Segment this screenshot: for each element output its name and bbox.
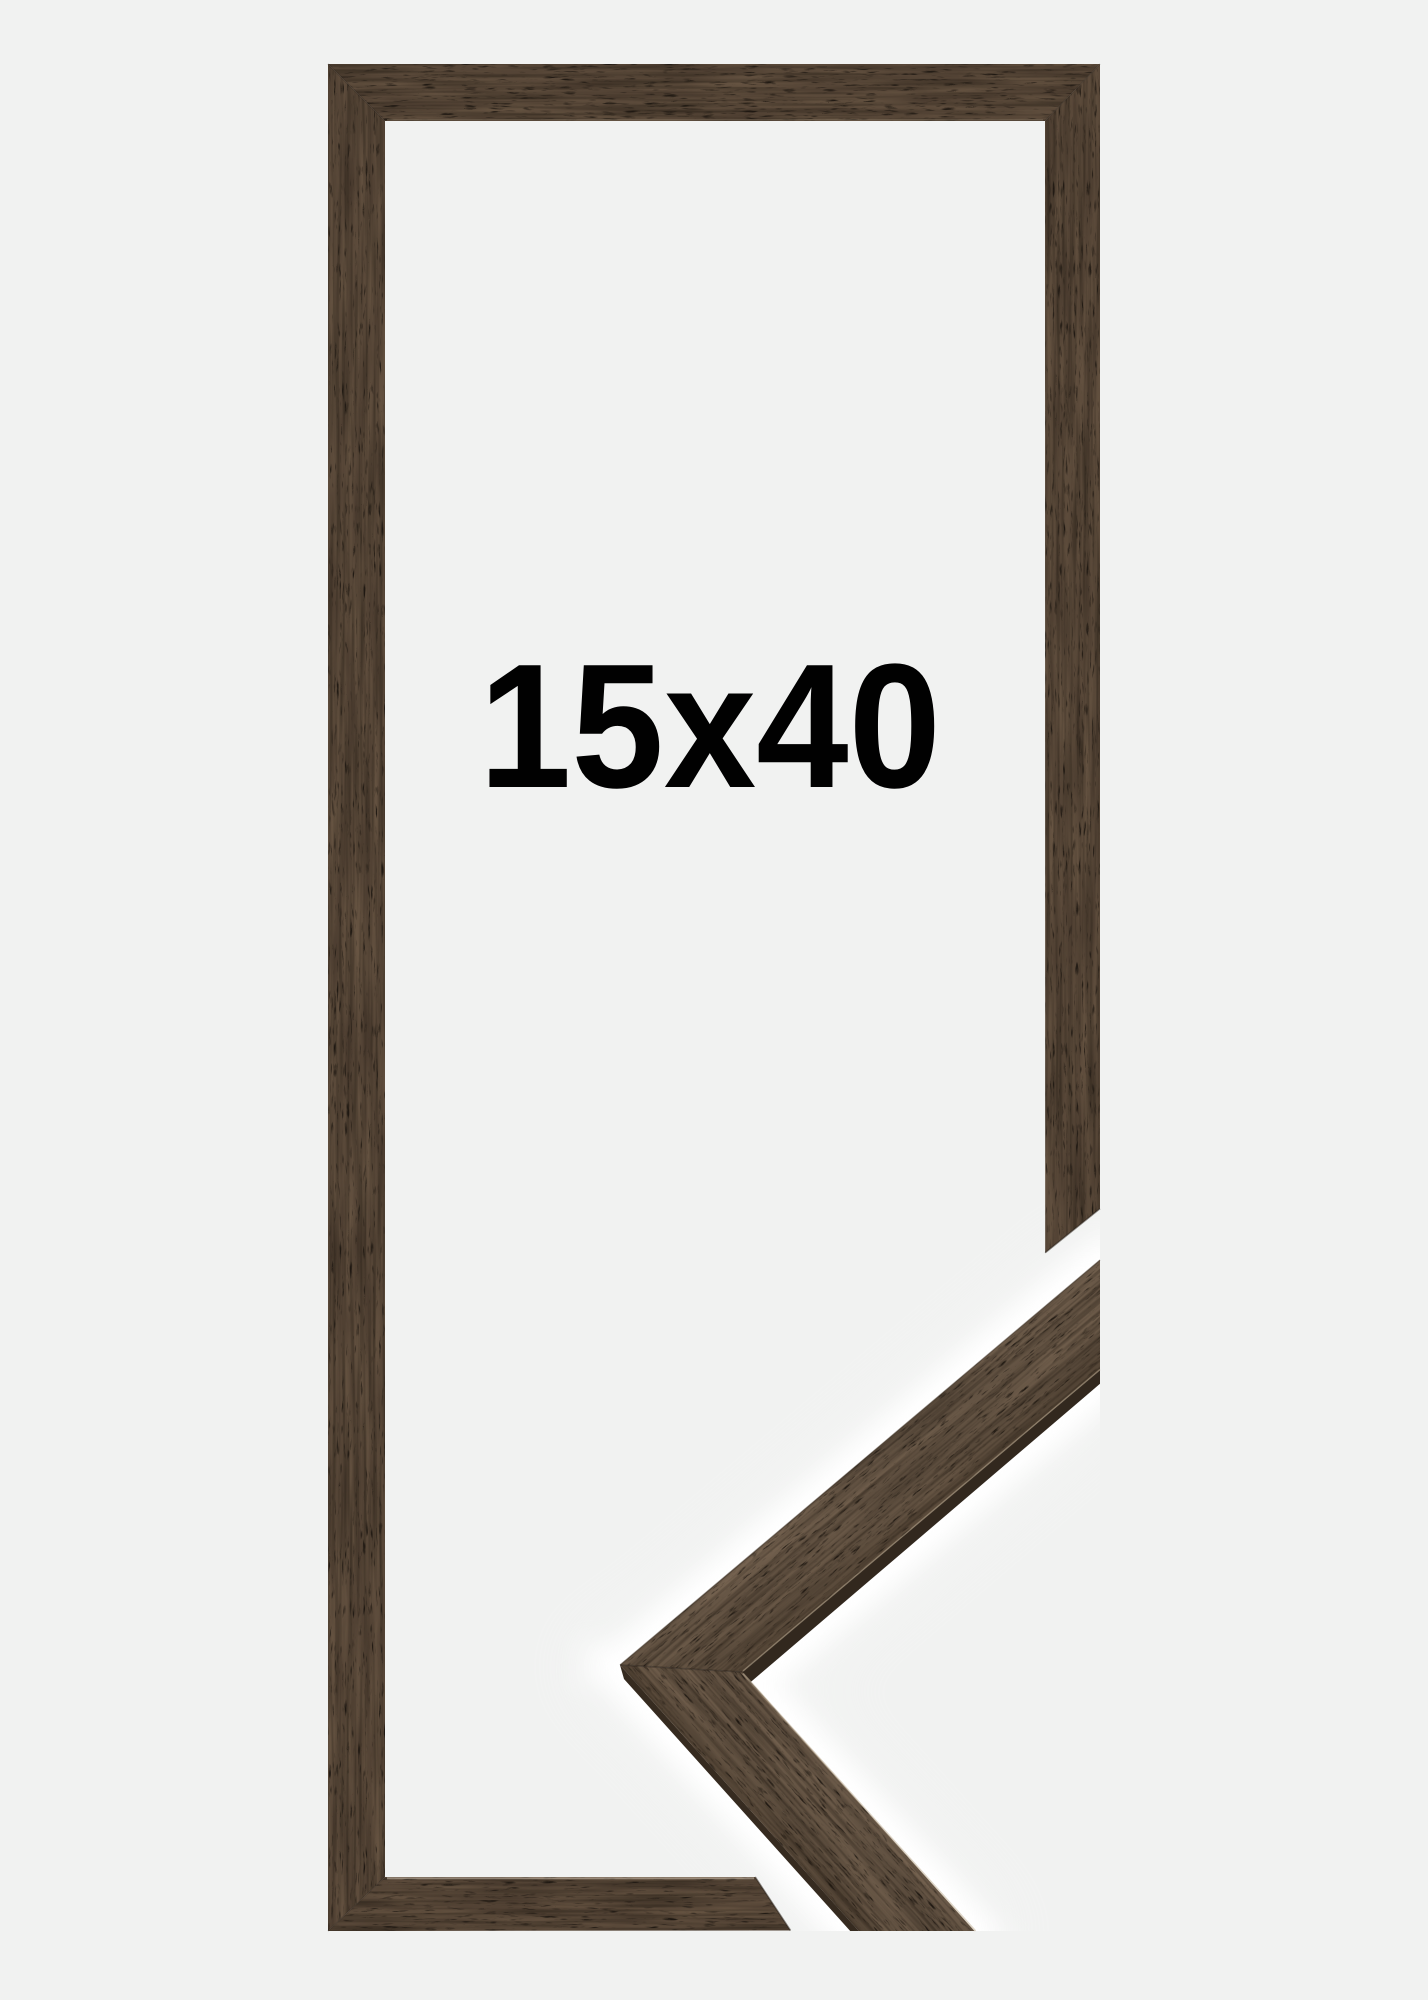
svg-text:15x40: 15x40 [479, 627, 941, 825]
